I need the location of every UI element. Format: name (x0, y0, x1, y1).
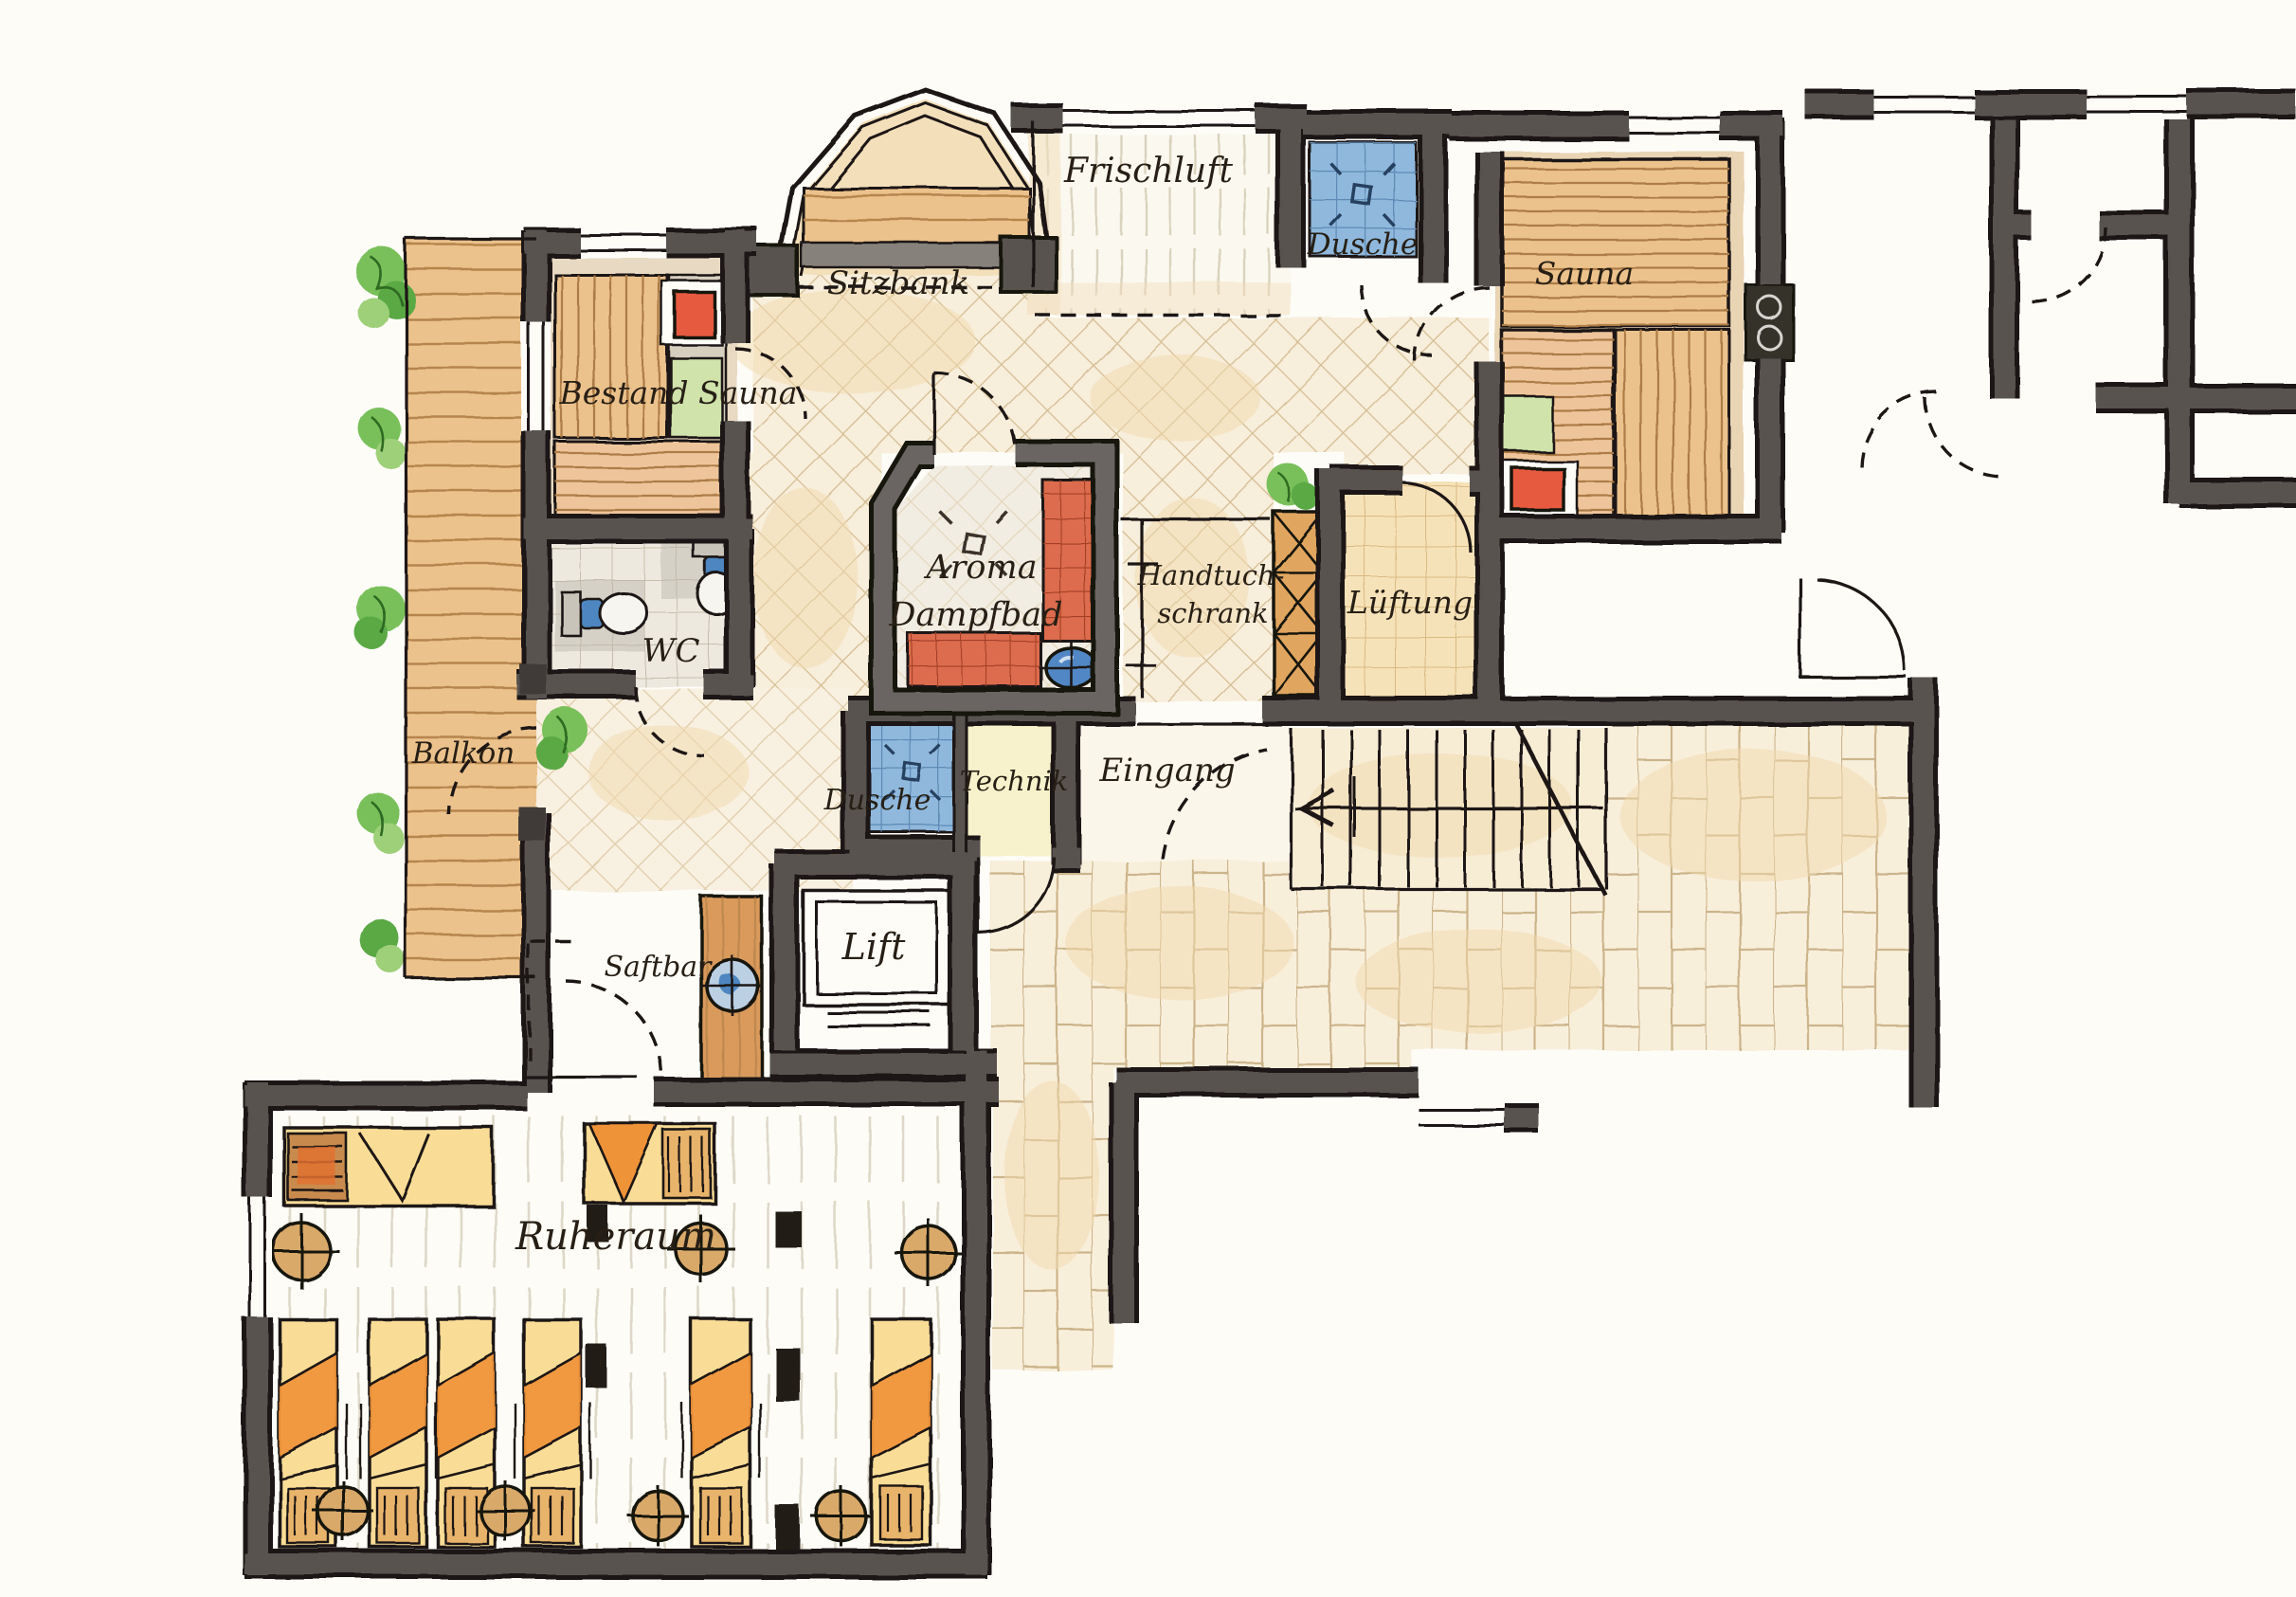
lueftung-label: Lüftung (1347, 584, 1473, 621)
eingang-floor (1078, 722, 1291, 864)
plan-ink-layer (243, 89, 2296, 1575)
lift-door (826, 1012, 931, 1025)
balkon-label: Balkon (411, 736, 515, 771)
eingang-label: Eingang (1098, 752, 1235, 789)
aroma-dampfbad-label-line2: Dampfbad (888, 596, 1062, 634)
frischluft-label: Frischluft (1063, 152, 1234, 191)
window-icon (243, 1198, 273, 1317)
lounger (585, 1124, 715, 1204)
sauna-heater-icon (1512, 468, 1564, 510)
aroma-dampfbad-label-line1: Aroma (923, 549, 1037, 587)
dusche-mitte-label: Dusche (823, 784, 931, 817)
bay-pier-right (1001, 237, 1056, 292)
sitzbank-label: Sitzbank (827, 264, 969, 302)
wc-label: WC (642, 632, 700, 670)
ruheraum-label: Ruheraum (515, 1215, 716, 1259)
window-icon (1629, 110, 1720, 142)
window-icon (580, 227, 666, 258)
plant-icon (355, 585, 405, 649)
sauna-label: Sauna (1535, 255, 1634, 292)
floor-plan-drawing: Sitzbank Frischluft Dusche Sauna Bestand… (0, 0, 2296, 1597)
dusche-top-label: Dusche (1307, 227, 1418, 262)
room-sauna (1495, 152, 1793, 531)
saftbar-label: Saftbar (604, 951, 713, 984)
pier (519, 663, 546, 694)
pier (519, 808, 546, 842)
plant-icon (357, 792, 404, 853)
floor-plan-page: Sitzbank Frischluft Dusche Sauna Bestand… (0, 0, 2296, 1597)
handtuchschrank-label-line1: Handtuch- (1137, 559, 1285, 591)
lift-label: Lift (841, 926, 906, 968)
sauna-heater-icon (675, 292, 714, 337)
plant-icon (1268, 464, 1319, 510)
window-icon (1063, 102, 1256, 135)
technik-label: Technik (960, 765, 1069, 797)
plant-icon (359, 918, 405, 973)
plant-icon (358, 408, 406, 468)
window-icon (1419, 1101, 1505, 1135)
bestand-sauna-label: Bestand Sauna (559, 374, 798, 411)
handtuchschrank-label-line2: schrank (1157, 597, 1268, 629)
window-icon (1873, 89, 1974, 119)
window-icon (2087, 89, 2187, 119)
window-icon (521, 322, 551, 431)
lounger (284, 1128, 493, 1206)
saftbar-counter (701, 897, 763, 1079)
